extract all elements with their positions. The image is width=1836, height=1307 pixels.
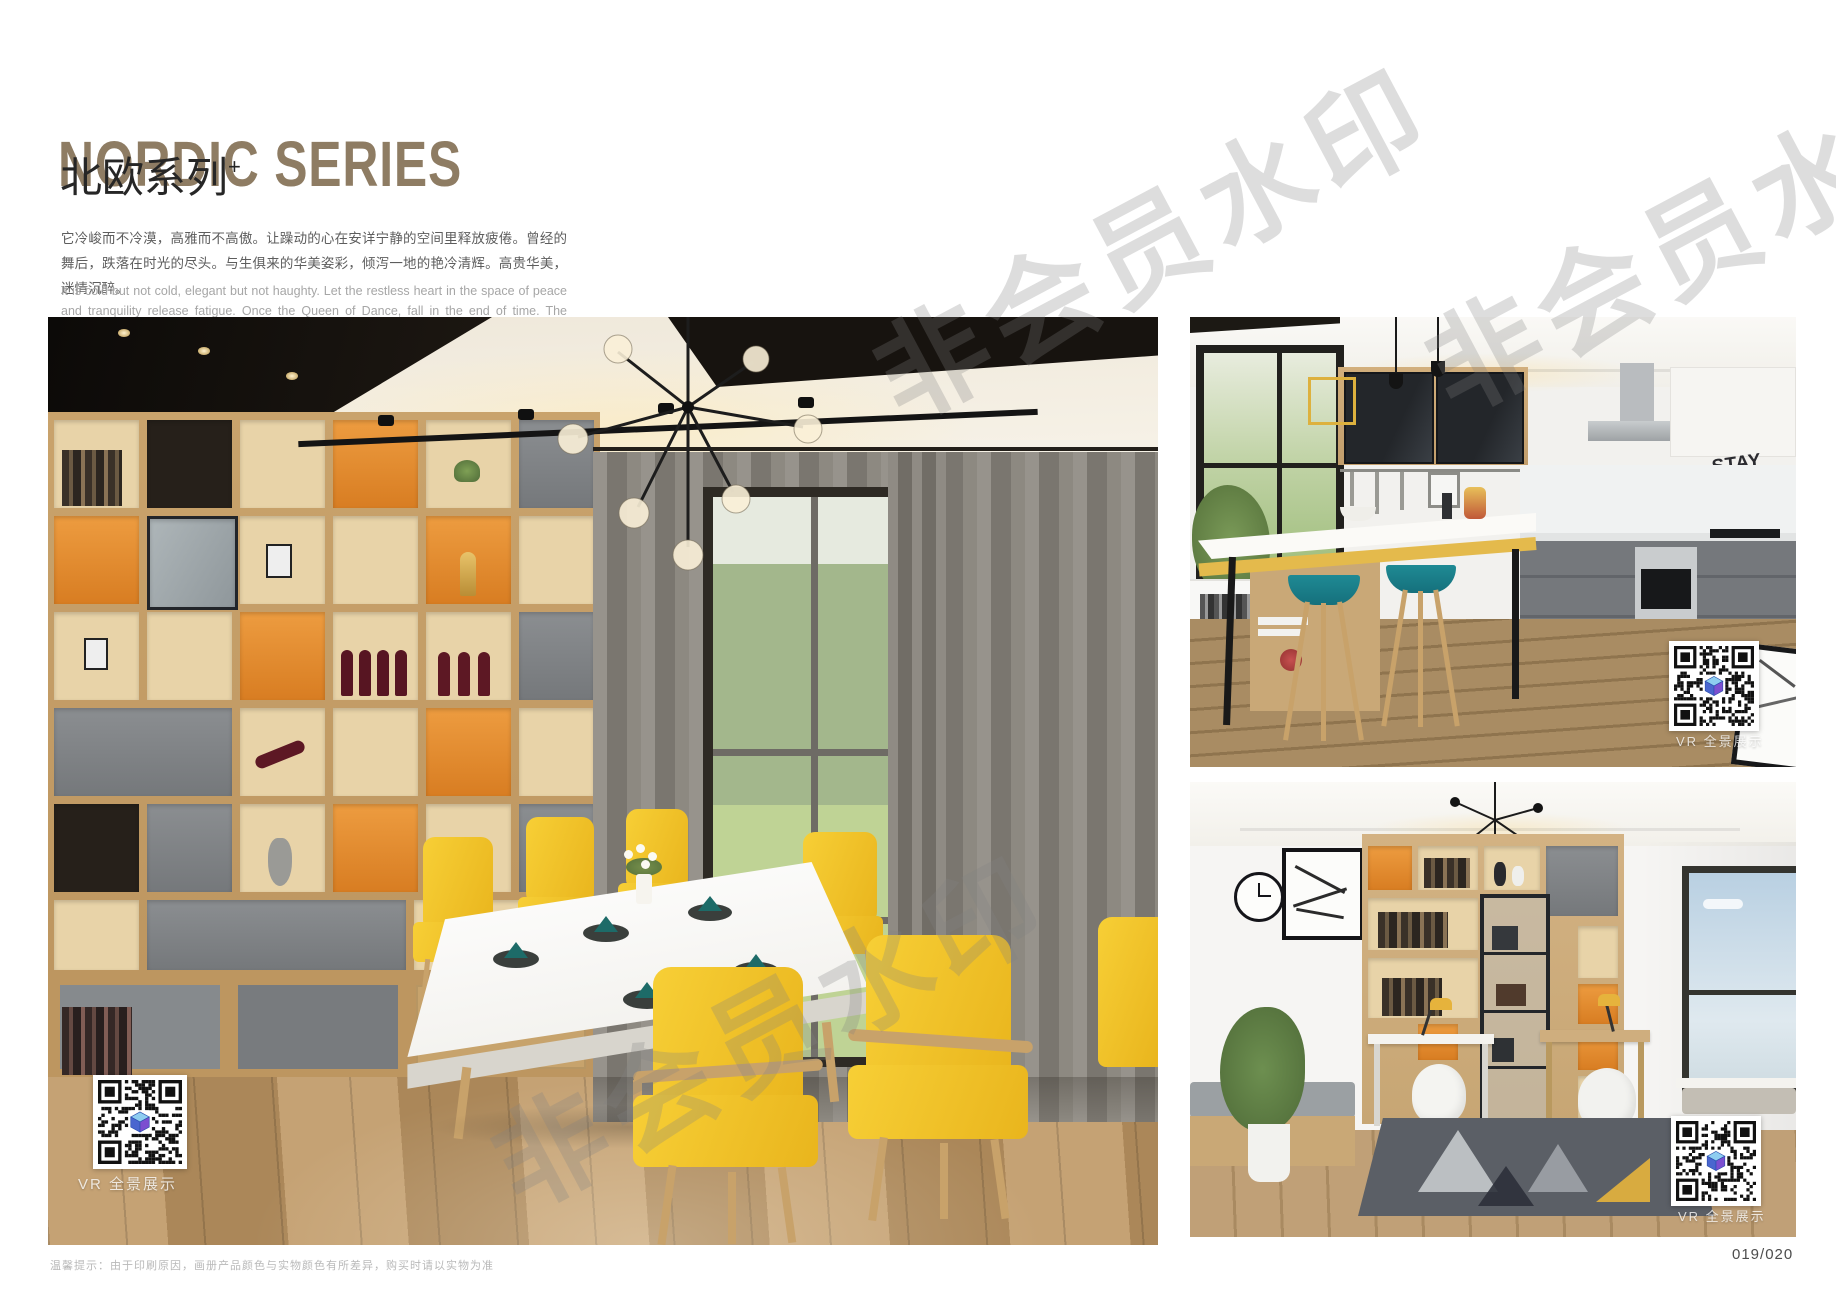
rug-triangle: [1596, 1158, 1650, 1202]
stool-leg: [1337, 601, 1364, 740]
desk-top: [1540, 1030, 1650, 1042]
shelf-cell: [147, 420, 232, 508]
stool-leg: [1418, 591, 1423, 727]
photo-frame: [266, 544, 292, 578]
rug-triangle: [1418, 1130, 1498, 1192]
shelf-cell: [240, 420, 325, 508]
wire-cube-shelf: [1308, 377, 1356, 425]
chair-leg: [940, 1143, 948, 1219]
glass-cabinet-door: [1436, 372, 1524, 464]
display-item: [1492, 926, 1518, 950]
wall-art-frame: [1282, 848, 1364, 940]
flower-vase: [636, 874, 652, 904]
shelf-cell: [54, 900, 139, 970]
shelf-cell: [54, 516, 139, 604]
vase: [1512, 866, 1524, 886]
footer-disclaimer: 温馨提示：由于印刷原因，画册产品颜色与实物颜色有所差异，购买时请以实物为准: [50, 1257, 494, 1273]
shelf-cell: [1418, 846, 1478, 890]
vase: [1464, 487, 1486, 519]
stool-seat: [1288, 575, 1360, 605]
wine-bottle: [458, 652, 470, 696]
desk-lamp: [1598, 994, 1620, 1006]
books: [1378, 912, 1448, 948]
shelf-cell: [240, 612, 325, 700]
shelf-cell: [1578, 926, 1618, 978]
ceiling-spotlight: [118, 329, 130, 337]
vr-label: VR 全景展示: [78, 1173, 177, 1194]
books: [62, 450, 122, 506]
cabinet-door: [1546, 846, 1618, 916]
window-mullion: [1204, 463, 1336, 468]
page-title-chinese: 北欧系列+: [60, 144, 241, 205]
qr-code: [93, 1075, 187, 1169]
glass-shelf: [1484, 1010, 1546, 1013]
chair-seat: [848, 1065, 1028, 1139]
wine-bottle: [341, 650, 353, 696]
shelf-cell: [54, 804, 139, 892]
stool-leg: [1381, 589, 1408, 726]
wine-bottle: [377, 650, 389, 696]
desk-leg: [1638, 1042, 1644, 1128]
shelf-cell: [54, 420, 139, 508]
area-rug: [1358, 1118, 1714, 1216]
catalog-page: { "header": { "title_en": "NORDIC SERIES…: [0, 0, 1836, 1307]
display-item: [1496, 984, 1526, 1006]
shelf-cell: [240, 516, 325, 604]
dining-chair-front: [633, 967, 843, 1245]
chair-leg: [728, 1172, 736, 1244]
chair-leg: [778, 1167, 796, 1243]
desk-top: [1368, 1034, 1494, 1044]
stool-seat: [1386, 565, 1456, 593]
vase: [1494, 862, 1506, 886]
plant-pot: [1248, 1124, 1290, 1182]
desk-chair: [1412, 1064, 1466, 1124]
glass-display-cabinet: [1480, 894, 1550, 1130]
frame-art-line: [1296, 908, 1344, 919]
wall-clock: [1234, 872, 1284, 922]
photo-frame: [84, 638, 108, 670]
bar-stool: [1288, 575, 1360, 745]
qr-pattern: [98, 1080, 182, 1164]
shelf-cell: [147, 612, 232, 700]
dining-chair-partial: [1098, 917, 1158, 1067]
frame-art-line: [1759, 659, 1796, 688]
shelf-cell: [426, 516, 511, 604]
shelf-cell: [54, 612, 139, 700]
kitchen-photo: STAY TRUE STAY YOU: [1190, 317, 1796, 767]
shelf-cell: [333, 516, 418, 604]
plate: [688, 904, 732, 921]
glass-cabinet: [147, 516, 238, 610]
bowl: [1340, 507, 1376, 521]
dining-chair-front: [848, 935, 1043, 1223]
shelf-cell: [1368, 898, 1478, 950]
dining-room-photo: VR 全景展示: [48, 317, 1158, 1245]
cloud: [1703, 899, 1743, 909]
cabinet-door: [54, 708, 232, 796]
glass-shelf: [1484, 1066, 1546, 1069]
stool-leg: [1433, 589, 1460, 726]
qr-pattern: [1676, 1121, 1756, 1201]
tulip: [624, 850, 633, 859]
pendant-lamp: [1389, 373, 1403, 389]
oven-window: [1641, 569, 1691, 609]
title-plus-mark: +: [228, 154, 241, 179]
page-number: 019/020: [1732, 1246, 1793, 1263]
cube-logo-icon: [128, 1110, 152, 1134]
glass-cabinet-door: [1344, 372, 1434, 464]
chair-leg: [868, 1137, 888, 1221]
plate: [493, 950, 539, 968]
backsplash: [1520, 465, 1796, 535]
vr-label: VR 全景展示: [1678, 1206, 1766, 1225]
potted-plant: [1220, 1007, 1305, 1132]
title-cn-text: 北欧系列: [60, 154, 228, 201]
tulip: [641, 860, 650, 869]
cube-logo-icon: [1705, 1150, 1727, 1172]
range-hood-duct: [1620, 363, 1654, 423]
wine-bottle: [395, 650, 407, 696]
window: [1682, 866, 1796, 1092]
shelf-cell: [1368, 958, 1478, 1018]
cabinet-door: [238, 985, 398, 1069]
wine-shelf: [426, 612, 511, 700]
plate: [583, 924, 629, 942]
stool-leg: [1283, 601, 1310, 740]
cube-logo-icon: [1703, 675, 1725, 697]
stool-leg: [1321, 603, 1326, 741]
shelf-cell: [426, 708, 511, 796]
vase: [268, 838, 292, 886]
shelf-cell: [333, 708, 418, 796]
shelf-cell: [1368, 846, 1412, 890]
vr-label: VR 全景展示: [1676, 731, 1764, 750]
wine-rack: [240, 708, 325, 796]
hanging-utensil: [1400, 472, 1404, 510]
chair-leg: [990, 1139, 1009, 1219]
hanging-utensil: [1350, 472, 1354, 506]
window-sill: [1676, 1078, 1796, 1088]
window-mullion: [1689, 990, 1796, 995]
pendant-cord: [1437, 317, 1439, 363]
desk-leg: [1374, 1044, 1380, 1126]
wall-cabinet-white: [1670, 367, 1796, 457]
sputnik-chandelier-icon: [518, 317, 858, 617]
pendant-lamp: [1431, 361, 1445, 377]
wine-bottle: [478, 652, 490, 696]
ceiling-spotlight: [286, 372, 298, 380]
books: [1424, 858, 1470, 888]
cabinet-door: [519, 612, 594, 700]
qr-code: [1671, 1116, 1761, 1206]
bar-stool: [1386, 565, 1456, 733]
tulip: [648, 852, 657, 861]
island-leg: [1512, 549, 1519, 699]
shelf-cell: [519, 708, 594, 796]
books: [1382, 978, 1442, 1016]
study-photo: VR 全景展示: [1190, 782, 1796, 1237]
frame-art-line: [1293, 887, 1347, 907]
cabinet-door: [147, 804, 232, 892]
glass-shelf: [1484, 952, 1546, 955]
trophy: [460, 552, 476, 596]
desk-leg: [1482, 1044, 1488, 1126]
qr-pattern: [1674, 646, 1754, 726]
display-item: [1492, 1038, 1514, 1062]
qr-code: [1669, 641, 1759, 731]
clock-hand: [1259, 895, 1271, 897]
bottle: [1442, 493, 1452, 519]
cabinet-door: [147, 900, 406, 970]
window-seat-cushion: [1682, 1088, 1796, 1114]
tulip: [636, 844, 645, 853]
track-light: [378, 415, 394, 426]
shelf-cell: [1484, 846, 1540, 890]
maroon-books: [62, 1007, 132, 1075]
desk-lamp: [1430, 998, 1452, 1010]
plant: [454, 460, 480, 482]
pendant-cord: [1395, 317, 1397, 375]
wine-bottle: [438, 652, 450, 696]
chair-seat: [633, 1095, 818, 1167]
shelf-cell: [333, 420, 418, 508]
shelf-cell: [240, 804, 325, 892]
wine-bottle: [359, 650, 371, 696]
chair-leg: [657, 1165, 676, 1245]
desk-leg: [1546, 1042, 1552, 1128]
ceiling-spotlight: [198, 347, 210, 355]
upper-cabinet: [1338, 367, 1528, 465]
cooktop: [1710, 529, 1780, 538]
rug-triangle: [1528, 1144, 1588, 1192]
wine-shelf: [333, 612, 418, 700]
wine-bottle: [253, 739, 306, 771]
